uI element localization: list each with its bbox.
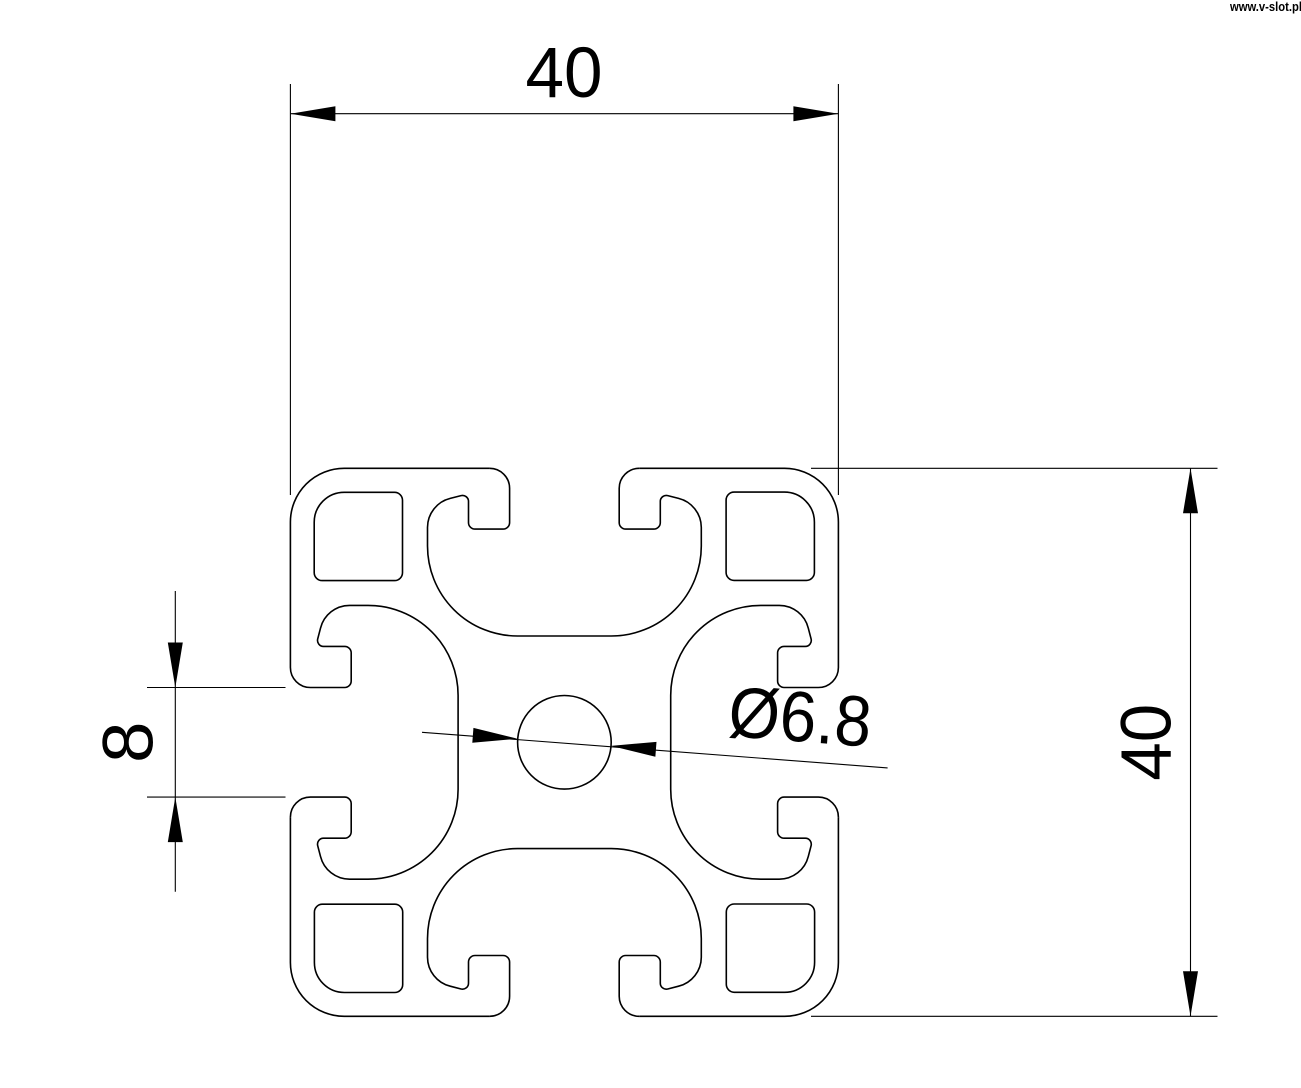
svg-text:40: 40 xyxy=(1107,704,1187,781)
svg-text:www.v-slot.pl: www.v-slot.pl xyxy=(1229,0,1301,14)
svg-text:Ø6.8: Ø6.8 xyxy=(726,672,875,763)
svg-text:8: 8 xyxy=(89,722,169,764)
svg-text:40: 40 xyxy=(526,33,603,113)
